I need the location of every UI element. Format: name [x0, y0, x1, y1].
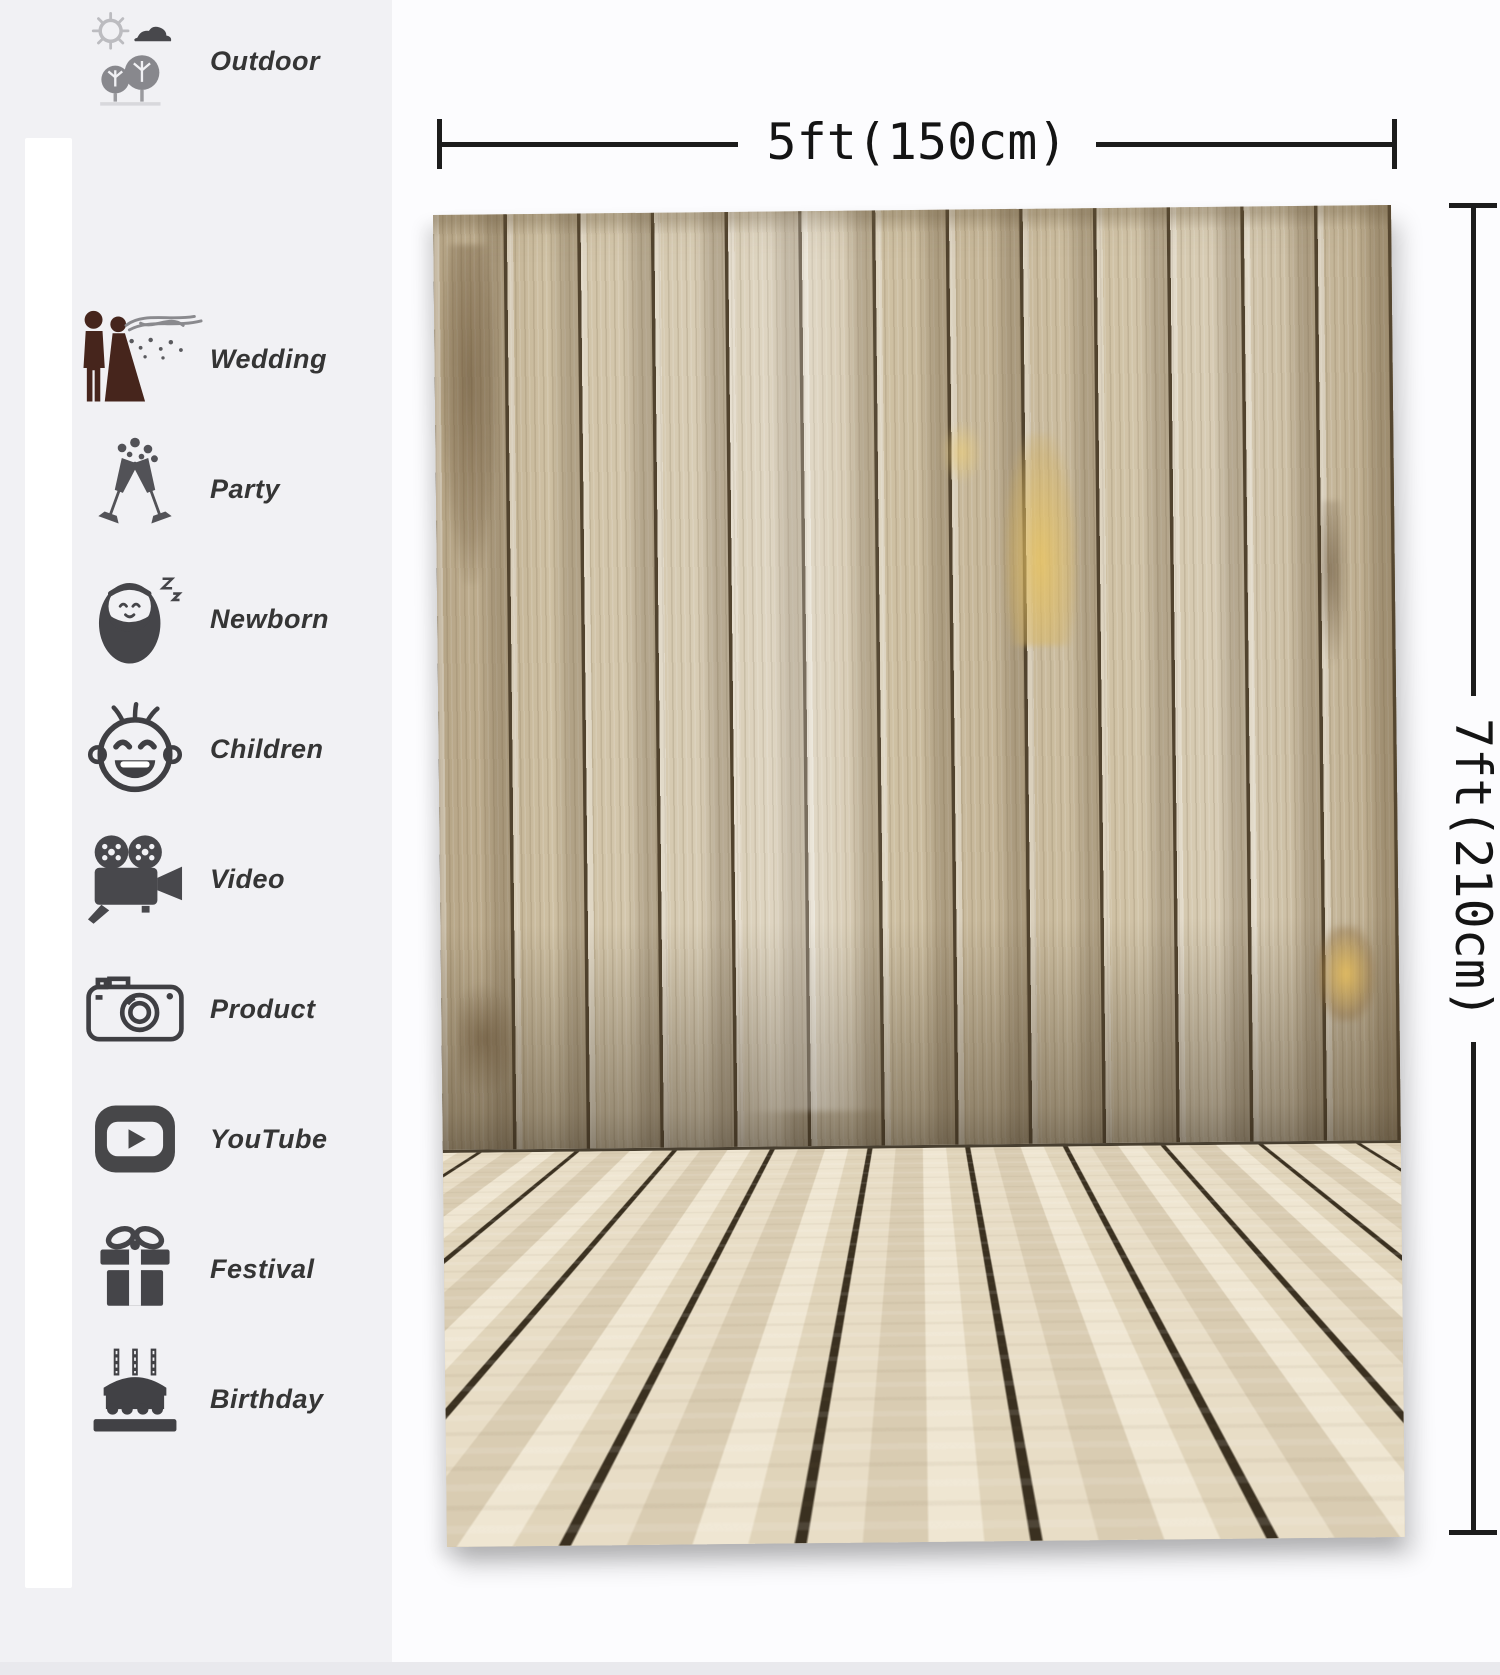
sidebar-item-label: Party: [210, 474, 280, 505]
baby-face-icon: [60, 693, 210, 805]
wood-knot-left-low: [457, 982, 520, 1095]
sidebar-item-outdoor: Outdoor: [60, 0, 386, 122]
width-dimension: 5ft(150cm): [437, 118, 1397, 170]
wood-dark-streak-left: [439, 244, 499, 585]
wood-knot-yellow: [1003, 433, 1077, 646]
dimension-tick-right: [1392, 119, 1397, 169]
sidebar-item-label: Birthday: [210, 1384, 324, 1415]
height-dimension: 7ft(210cm): [1447, 203, 1499, 1535]
width-dimension-label: 5ft(150cm): [766, 113, 1067, 171]
gift-box-icon: [60, 1215, 210, 1323]
swaddled-baby-icon: [60, 566, 210, 672]
bottom-edge-strip: [0, 1662, 1500, 1675]
dimension-line-right: [1096, 142, 1392, 147]
sidebar-item-label: Newborn: [210, 604, 329, 635]
sidebar-item-label: Children: [210, 734, 324, 765]
wood-pale-band: [733, 210, 892, 1112]
sidebar-item-label: YouTube: [210, 1124, 328, 1155]
sidebar-item-product: Product: [60, 948, 386, 1070]
height-dimension-label: 7ft(210cm): [1444, 718, 1500, 1019]
birthday-cake-icon: [60, 1343, 210, 1455]
sidebar-item-party: Party: [60, 428, 386, 550]
wedding-couple-icon: [60, 303, 210, 415]
wood-wall: [433, 205, 1401, 1150]
photo-camera-icon: [60, 951, 210, 1067]
backdrop-photo: [433, 205, 1405, 1547]
youtube-play-icon: [60, 1085, 210, 1193]
dimension-line-lower: [1471, 1042, 1476, 1530]
sidebar-item-label: Festival: [210, 1254, 315, 1285]
sidebar-item-label: Video: [210, 864, 285, 895]
dimension-line-upper: [1471, 208, 1476, 696]
wood-dark-streak-right: [1314, 500, 1350, 670]
sidebar-item-wedding: Wedding: [60, 298, 386, 420]
wood-knot-small: [940, 421, 983, 483]
sidebar-item-label: Product: [210, 994, 316, 1025]
champagne-glasses-icon: [60, 435, 210, 543]
movie-camera-icon: [60, 823, 210, 935]
sun-trees-icon: [60, 3, 210, 119]
wood-knot-right: [1317, 925, 1376, 1022]
dimension-line-left: [442, 142, 738, 147]
page-background: { "page": { "panel_bg": "#f1f1f4", "main…: [0, 0, 1500, 1675]
sidebar-item-label: Outdoor: [210, 46, 320, 77]
sidebar-item-birthday: Birthday: [60, 1338, 386, 1460]
category-panel: Wedding Party: [0, 0, 392, 1675]
sidebar-item-label: Wedding: [210, 344, 327, 375]
sidebar-item-festival: Festival: [60, 1208, 386, 1330]
sidebar-item-video: Video: [60, 818, 386, 940]
sidebar-item-youtube: YouTube: [60, 1078, 386, 1200]
wood-floor: [443, 1140, 1405, 1547]
sidebar-item-children: Children: [60, 688, 386, 810]
sidebar-item-newborn: Newborn: [60, 558, 386, 680]
dimension-tick-bottom: [1449, 1530, 1497, 1535]
